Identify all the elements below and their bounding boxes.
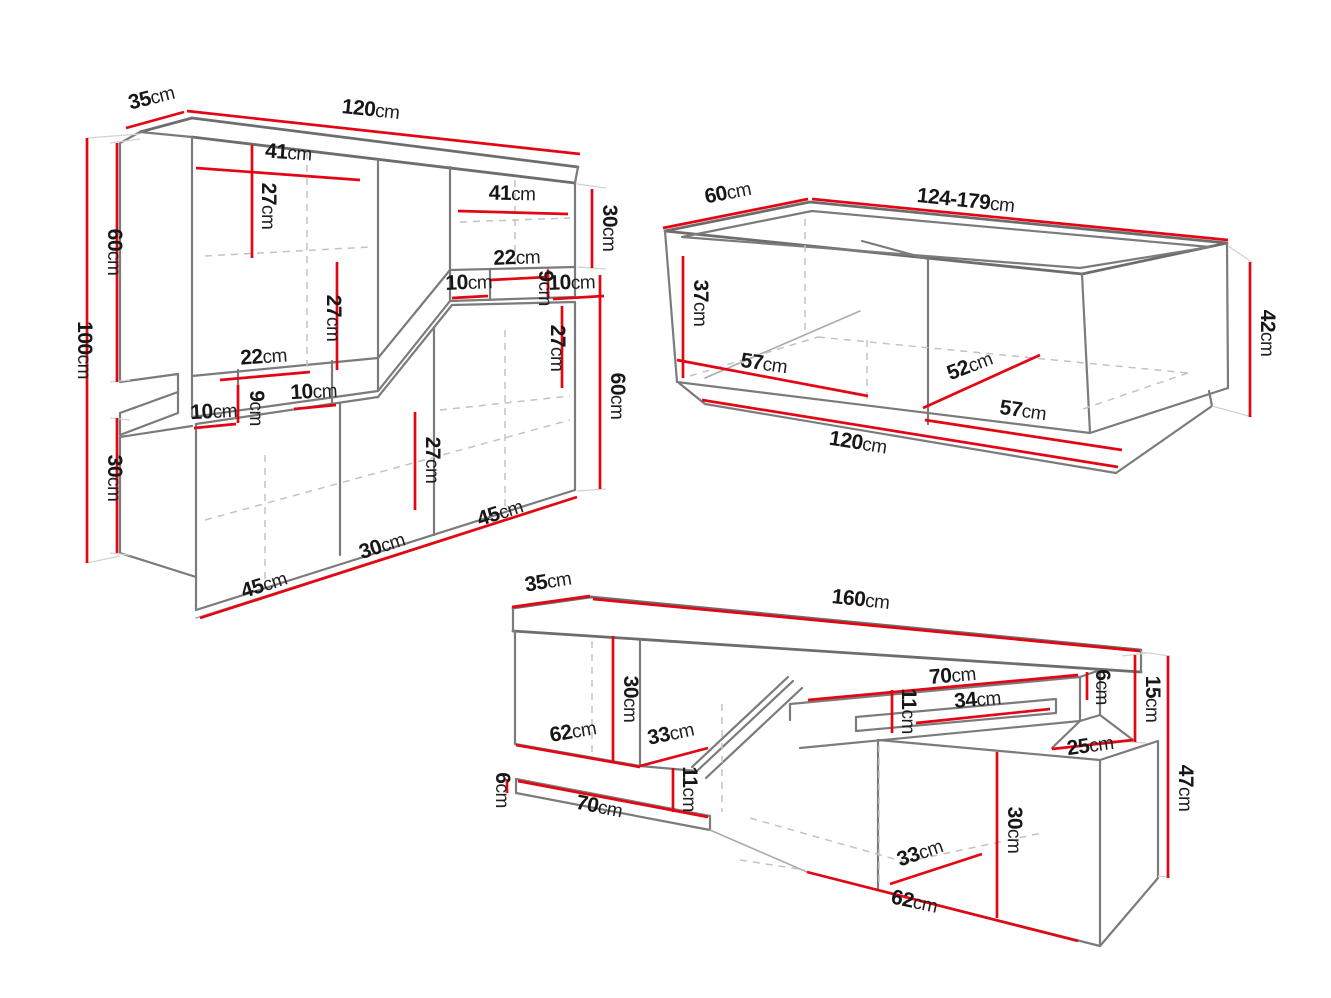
dim-label-left-width: 62cm: [548, 716, 598, 747]
dim-label-slot-w: 34cm: [953, 686, 1002, 713]
dimension-line-shelf-a: [196, 168, 360, 180]
dim-label-depth: 35cm: [523, 567, 573, 597]
dim-label-shelf-a-h: 27cm: [257, 183, 280, 230]
dim-label-right-bottom-h: 60cm: [606, 373, 629, 420]
tv-stand-diagram: 35cm 160cm 30cm 62cm 33cm 11cm 6cm 70cm …: [491, 567, 1197, 946]
dim-label-left-niche-h: 11cm: [678, 766, 701, 812]
dim-label-right-end-d: 25cm: [1065, 731, 1114, 760]
dim-label-niche-bottom-right: 10cm: [290, 379, 338, 404]
dim-label-floor-right: 57cm: [998, 396, 1047, 425]
dim-label-niche-top-w: 22cm: [493, 245, 540, 270]
dim-label-niche-bottom-left: 10cm: [190, 399, 238, 424]
dim-label-shelf-left-h: 6cm: [491, 772, 514, 808]
dimension-line-left-depth: [640, 748, 708, 766]
dim-label-shelf-a-w: 41cm: [264, 139, 312, 165]
dim-label-height: 42cm: [1256, 310, 1279, 357]
dimensions-drawing-canvas: 35cm 120cm 41cm 27cm 41cm 30cm 22cm 10cm…: [0, 0, 1331, 998]
dim-label-right-top-h: 30cm: [598, 205, 621, 252]
dim-label-depth: 35cm: [126, 81, 177, 115]
dim-label-niche-top-left: 10cm: [445, 270, 492, 295]
dim-label-right-end-h: 15cm: [1141, 676, 1164, 723]
dim-label-width: 124-179cm: [916, 184, 1016, 217]
dim-label-height: 100cm: [73, 321, 96, 379]
dim-label-right-width: 62cm: [889, 886, 939, 918]
dim-label-slot-h: 11cm: [897, 688, 920, 734]
dimension-line-depth: [663, 199, 808, 228]
dimension-line-depth: [126, 112, 184, 128]
furniture-dimensions-sheet: 35cm 120cm 41cm 27cm 41cm 30cm 22cm 10cm…: [0, 0, 1331, 998]
dimension-line-shelf-b: [458, 211, 568, 214]
dim-label-depth: 60cm: [703, 177, 753, 208]
dimension-line-depth: [512, 596, 590, 607]
dim-label-left-bottom-h: 30cm: [103, 455, 126, 502]
dim-label-inner-height: 37cm: [689, 280, 712, 327]
dim-label-shelf-b-w: 41cm: [489, 182, 536, 206]
tv-stand-bottom-silhouette: [710, 830, 807, 872]
dim-label-left-depth: 33cm: [645, 718, 695, 750]
wall-unit-side-panel: [120, 132, 196, 577]
dim-label-shelf-right-w: 70cm: [928, 662, 977, 689]
dimension-line-left-width: [516, 745, 640, 767]
dim-label-right-inner-h: 30cm: [1003, 807, 1026, 854]
dim-label-left-inner-h: 30cm: [619, 676, 642, 723]
dim-label-width: 120cm: [341, 95, 401, 124]
coffee-table-diagram: 60cm 124-179cm 37cm 42cm 57cm 52cm 57cm …: [663, 177, 1279, 473]
dimension-line-width: [812, 199, 1228, 240]
dim-label-base-right: 45cm: [474, 495, 526, 531]
wall-unit-upper-cabinet: [192, 137, 575, 417]
wall-unit-diagonal-step: [378, 270, 452, 397]
dimension-line-right-width: [807, 872, 1078, 941]
dim-label-base-width: 120cm: [828, 427, 889, 459]
tv-stand-diagonal-ramp: [692, 677, 802, 778]
dim-label-niche-bottom-w: 22cm: [239, 343, 287, 369]
dim-label-shelf-d-h: 27cm: [546, 325, 569, 372]
wall-unit-top-silhouette: [140, 118, 578, 167]
coffee-table-divider: [862, 241, 928, 424]
wall-unit-diagram: 35cm 120cm 41cm 27cm 41cm 30cm 22cm 10cm…: [73, 81, 629, 618]
dim-label-shelf-left-w: 70cm: [574, 791, 624, 822]
dim-label-width: 160cm: [831, 585, 891, 614]
dim-label-niche-top-right: 10cm: [548, 270, 595, 295]
dim-label-right-depth: 33cm: [894, 834, 946, 871]
dim-label-shelf-c-h: 27cm: [322, 295, 345, 342]
dim-label-niche-bottom-h: 9cm: [245, 390, 268, 426]
coffee-table-dashed-details: [690, 219, 1188, 410]
tv-stand-top-front-edge: [513, 631, 1141, 672]
dim-label-shelf-right-h: 6cm: [1091, 669, 1114, 705]
dim-label-left-top-h: 60cm: [103, 229, 126, 276]
dim-label-shelf-e-h: 27cm: [421, 437, 444, 484]
dim-label-height: 47cm: [1174, 765, 1197, 812]
